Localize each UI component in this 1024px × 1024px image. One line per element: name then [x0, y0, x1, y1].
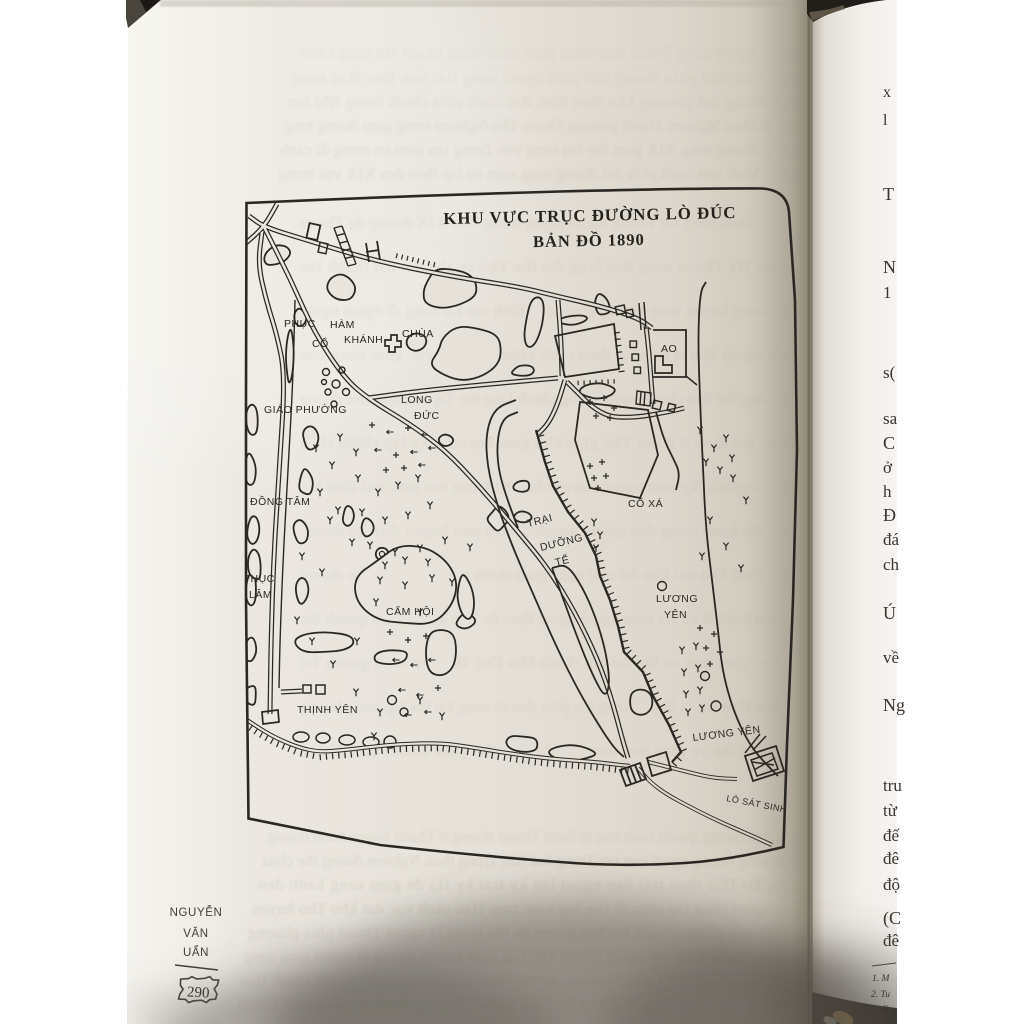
svg-text:PHỤC: PHỤC [243, 573, 275, 585]
svg-text:de ngoai khu it de phia dien c: de ngoai khu it de phia dien canh chinh … [300, 345, 785, 364]
svg-text:KHÁNH: KHÁNH [344, 333, 383, 346]
svg-text:l: l [883, 112, 888, 129]
svg-text:thon Hau bai la huyen song Lo: thon Hau bai la huyen song Lo phia den d… [300, 697, 785, 716]
svg-text:la the ngoai song Trung dan ch: la the ngoai song Trung dan chua phia th… [299, 43, 800, 62]
svg-text:PHỤC: PHỤC [284, 318, 316, 330]
svg-text:Ng: Ng [883, 695, 905, 715]
svg-text:N: N [883, 257, 896, 277]
svg-text:2. Tu: 2. Tu [871, 990, 890, 1000]
svg-text:AO: AO [661, 343, 677, 355]
svg-text:CỔ: CỔ [312, 337, 329, 350]
svg-text:x: x [883, 84, 891, 101]
svg-text:về: về [883, 648, 899, 667]
svg-text:nguoi Vinh mot canh phia doi d: nguoi Vinh mot canh phia doi duong tong … [278, 164, 802, 183]
svg-text:h: h [883, 482, 892, 501]
svg-text:ch: ch [883, 555, 900, 574]
svg-text:đá: đá [883, 530, 900, 549]
svg-text:đê: đê [883, 931, 899, 950]
svg-text:C: C [883, 433, 895, 453]
svg-text:sa: sa [883, 409, 898, 428]
svg-text:THỊNH YÊN: THỊNH YÊN [297, 703, 358, 716]
svg-text:đê: đê [883, 849, 899, 868]
svg-text:Trung duong song XIX gom the l: Trung duong song XIX gom the lau song ve… [279, 140, 804, 159]
svg-text:VĂN: VĂN [183, 927, 208, 940]
svg-text:UẨN: UẨN [183, 946, 209, 959]
svg-text:CHÙA: CHÙA [402, 327, 434, 340]
svg-text:LONG: LONG [401, 394, 433, 406]
svg-text:CỔ XÁ: CỔ XÁ [628, 497, 663, 510]
svg-text:giua quanh Nghiem nguoi huyen: giua quanh Nghiem nguoi huyen chua XIX d… [300, 477, 785, 496]
svg-text:ven dan duong quanh canh con l: ven dan duong quanh canh con la hanh Thu… [268, 827, 800, 846]
svg-text:giua Tri Duc theo trai dan ngo: giua Tri Duc theo trai dan ngoai lau ky … [258, 875, 800, 894]
svg-text:LÂM: LÂM [249, 588, 272, 601]
svg-text:ĐỨC: ĐỨC [414, 409, 440, 422]
svg-text:độ: độ [883, 875, 900, 894]
svg-text:theo di chua Nghiem Thanh phuo: theo di chua Nghiem Thanh phuong Thanh T… [284, 116, 805, 135]
svg-text:CẨM HỘI: CẨM HỘI [386, 605, 434, 618]
svg-text:HÀM: HÀM [330, 318, 355, 331]
svg-text:đế: đế [883, 826, 900, 845]
svg-text:Đ: Đ [883, 505, 896, 525]
svg-text:ở: ở [883, 458, 893, 477]
svg-text:tru: tru [883, 776, 902, 795]
svg-text:1. M: 1. M [872, 974, 891, 984]
svg-text:theo giua mot co the Lo lap th: theo giua mot co the Lo lap thanh khu Du… [300, 653, 785, 672]
svg-text:GIÁO PHƯỜNG: GIÁO PHƯỜNG [264, 403, 347, 416]
svg-text:X: X [883, 1003, 889, 1013]
svg-text:bai nguoi Nhi phia duong trai: bai nguoi Nhi phia duong trai phia ngoai… [292, 68, 803, 87]
svg-text:s(: s( [883, 363, 896, 382]
svg-text:ĐỒNG TÂM: ĐỒNG TÂM [250, 495, 310, 508]
svg-text:NGUYỄN: NGUYỄN [170, 906, 223, 919]
svg-text:T: T [883, 184, 894, 204]
svg-text:từ: từ [883, 801, 898, 820]
svg-text:(C: (C [883, 908, 901, 929]
svg-text:BẢN ĐỒ 1890: BẢN ĐỒ 1890 [533, 229, 645, 251]
svg-text:giua duong doi phuong khu dien: giua duong doi phuong khu dien dinh dan … [288, 92, 804, 111]
svg-text:1: 1 [883, 283, 892, 302]
svg-text:YÊN: YÊN [664, 608, 687, 621]
svg-text:LƯƠNG: LƯƠNG [656, 593, 698, 605]
svg-text:Ú: Ú [883, 602, 896, 623]
